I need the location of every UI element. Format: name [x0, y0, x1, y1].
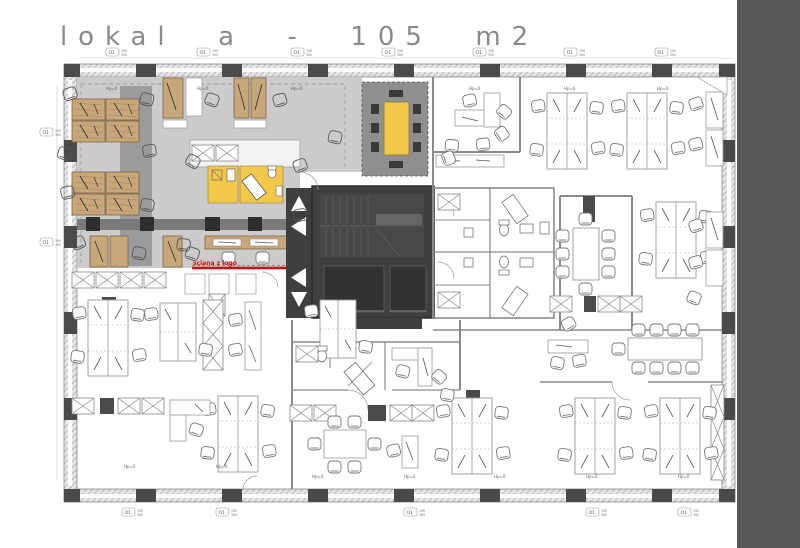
single-desk-bottom: [386, 436, 418, 468]
parapet-label: Hp=0: [494, 474, 506, 479]
floor-plan-canvas: lokal a - 105 m2: [0, 0, 800, 548]
window-tag-label: O1: [681, 510, 688, 516]
window-tag-label: O1: [385, 50, 392, 56]
window-height: 300: [231, 513, 237, 517]
window-tag-label: O1: [294, 50, 301, 56]
parapet-label: Hp=0: [564, 86, 576, 91]
window-tag-label: O1: [567, 50, 574, 56]
window-height: 300: [488, 53, 494, 57]
desk-cluster: [557, 398, 633, 474]
desk-cluster: [529, 93, 605, 169]
window-height: 300: [670, 53, 676, 57]
desk-cluster: [70, 300, 146, 376]
window-height: 300: [137, 513, 143, 517]
window-tag-label: O1: [125, 510, 132, 516]
logo-wall-label: ściana z logo: [193, 260, 237, 267]
conference-room-top: [362, 82, 428, 176]
corridor-band: [77, 219, 300, 230]
window-tag-label: O1: [219, 510, 226, 516]
window-tag-label: O1: [43, 240, 50, 246]
desk-cluster: [609, 93, 685, 169]
meeting-table-8: [556, 213, 615, 295]
office-mid-bottom: [392, 348, 432, 386]
window-height: 300: [693, 513, 699, 517]
desk-cluster: [434, 398, 510, 474]
parapet-label: Hp=0: [586, 474, 598, 479]
meeting-table-long: [612, 324, 702, 374]
parapet-label: Hp=0: [469, 86, 481, 91]
window-height: 300: [397, 53, 403, 57]
window-tag-label: O1: [476, 50, 483, 56]
parapet-label: Hp=0: [291, 86, 303, 91]
parapet-label: Hp=0: [312, 474, 324, 479]
conference-table-yellow: [384, 102, 409, 155]
yellow-rooms: [208, 166, 283, 203]
parapet-label: Hp=0: [216, 464, 228, 469]
wc-bottom: [296, 346, 327, 362]
tall-desk-left: [228, 302, 261, 370]
window-height: 300: [579, 53, 585, 57]
l-desk-bottom-left: [170, 400, 210, 441]
window-tag-label: O1: [43, 130, 50, 136]
desk-cluster: [638, 202, 714, 278]
window-height: 300: [601, 513, 607, 517]
parapet-label: Hp=0: [197, 86, 209, 91]
window-tag-label: O1: [109, 50, 116, 56]
wc-block-fixtures: [438, 194, 549, 316]
parapet-label: Hp=0: [404, 474, 416, 479]
desk-cluster: [642, 398, 718, 474]
small-table-6: [308, 416, 381, 473]
parapet-label: Hp=0: [678, 474, 690, 479]
desk-cluster-2: [144, 303, 213, 361]
window-height: 300: [55, 133, 61, 137]
window-tag-label: O1: [407, 510, 414, 516]
window-height: 300: [419, 513, 425, 517]
window-tag-label: O1: [589, 510, 596, 516]
window-height: 300: [55, 243, 61, 247]
floor-plan-drawing: ściana z logo: [0, 0, 800, 548]
elevator-2: [390, 266, 426, 312]
window-height: 300: [212, 53, 218, 57]
window-tag-label: O1: [200, 50, 207, 56]
window-tag-label: O1: [658, 50, 665, 56]
desk-cluster: [200, 396, 276, 472]
window-height: 300: [306, 53, 312, 57]
parapet-label: Hp=0: [124, 464, 136, 469]
parapet-label: Hp=0: [657, 86, 669, 91]
right-margin-bar: [737, 0, 800, 548]
manager-desk: [548, 316, 588, 371]
window-height: 300: [121, 53, 127, 57]
parapet-label: Hp=0: [106, 86, 118, 91]
